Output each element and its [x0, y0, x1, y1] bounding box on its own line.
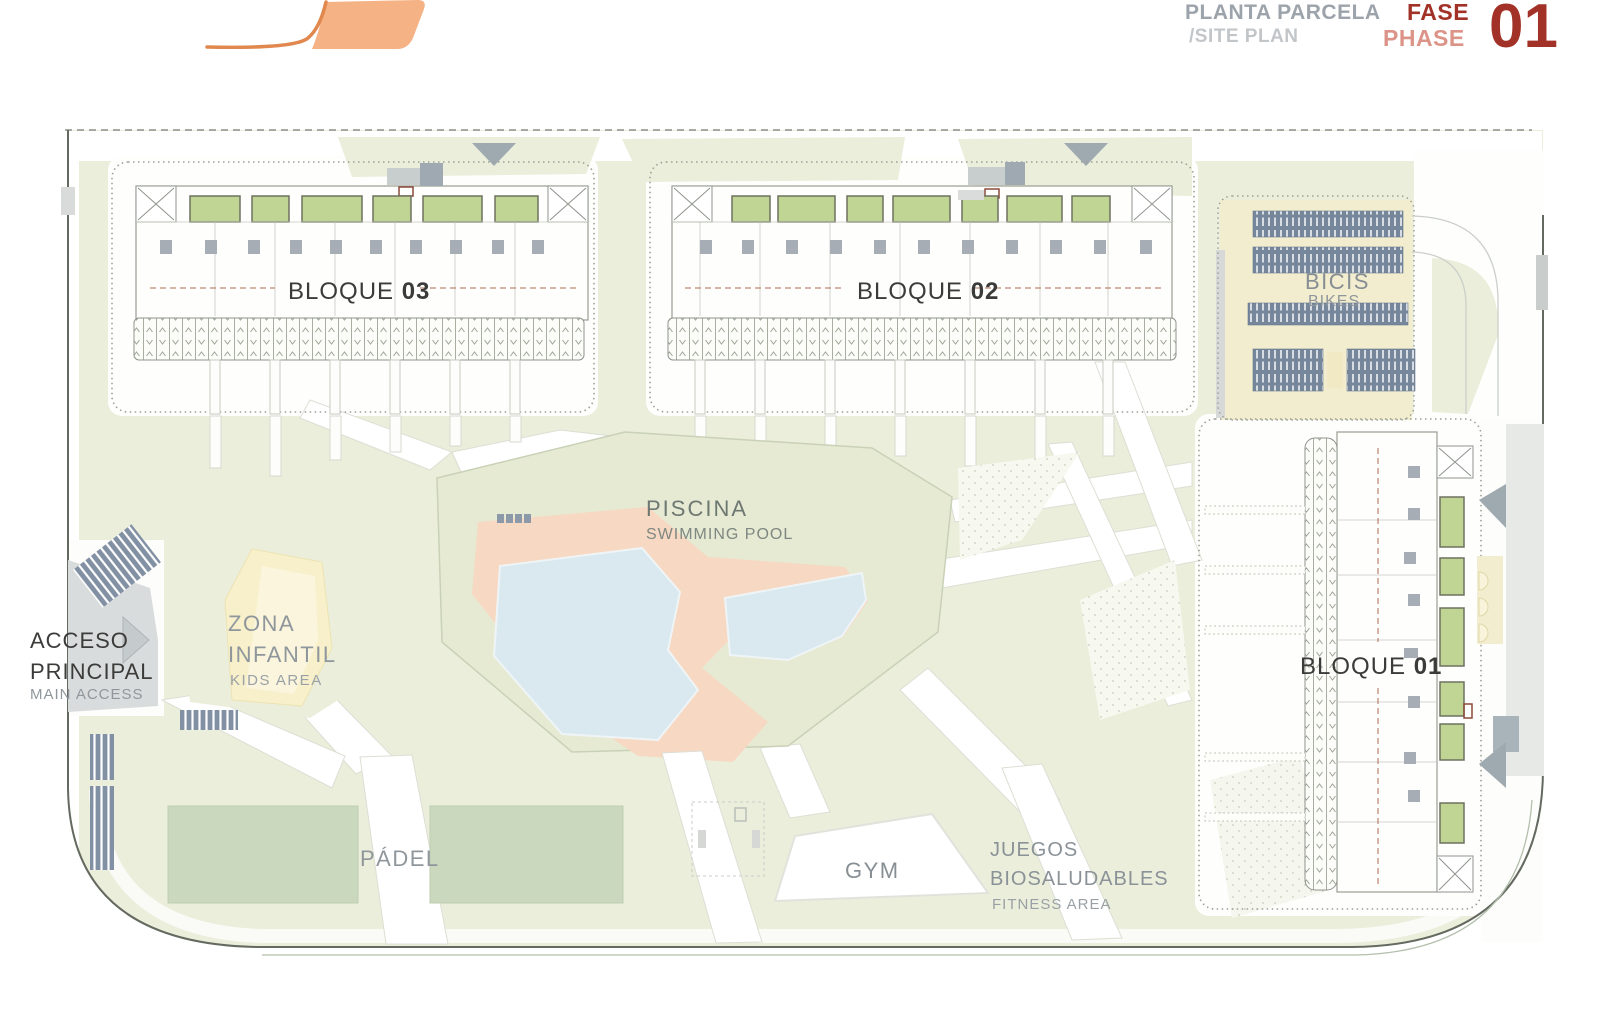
bloque-01-label: BLOQUE 01: [1300, 655, 1442, 679]
padel-court-2: [430, 806, 623, 903]
bloque-02-label: BLOQUE 02: [857, 280, 999, 304]
terraces: [668, 318, 1176, 360]
sheet-subtitle: /SITE PLAN: [1189, 27, 1299, 46]
bloque-03-word: BLOQUE: [288, 278, 394, 305]
main-access-sublabel: MAIN ACCESS: [30, 687, 144, 702]
bloque-02-number: 02: [971, 278, 1000, 305]
bloque-02-word: BLOQUE: [857, 278, 963, 305]
kids-area-label: ZONAINFANTIL: [228, 608, 337, 670]
fitness-label: JUEGOSBIOSALUDABLES: [990, 836, 1169, 894]
kids-line2: INFANTIL: [228, 642, 337, 667]
pool-label: PISCINA: [646, 498, 748, 520]
gym-label: GYM: [845, 860, 900, 882]
padel-court-1: [168, 806, 358, 903]
bloque-01-word: BLOQUE: [1300, 653, 1406, 680]
fitness-line1: JUEGOS: [990, 839, 1078, 861]
terraces: [134, 318, 584, 360]
site-plan-sheet: PLANTA PARCELA /SITE PLAN FASE PHASE 01 …: [0, 0, 1600, 1024]
access-line1: ACCESO: [30, 628, 129, 653]
fitness-sublabel: FITNESS AREA: [992, 897, 1112, 912]
kids-area-sublabel: KIDS AREA: [230, 673, 323, 688]
access-line2: PRINCIPAL: [30, 659, 154, 684]
bloque-03-number: 03: [402, 278, 431, 305]
sheet-title: PLANTA PARCELA: [1185, 2, 1381, 23]
padel-label: PÁDEL: [360, 848, 440, 870]
main-access-label: ACCESOPRINCIPAL: [30, 625, 154, 687]
kids-line1: ZONA: [228, 611, 295, 636]
site-plan-drawing: [0, 0, 1600, 1024]
bloque-01-number: 01: [1414, 653, 1443, 680]
pool-sublabel: SWIMMING POOL: [646, 527, 793, 543]
bloque-03-label: BLOQUE 03: [288, 280, 430, 304]
phase-number: 01: [1489, 0, 1558, 58]
brand-logo: [200, 0, 440, 56]
bikes-label: BICIS: [1305, 271, 1370, 293]
phase-label: PHASE: [1383, 27, 1465, 50]
fase-label: FASE: [1407, 1, 1469, 24]
fitness-line2: BIOSALUDABLES: [990, 868, 1169, 890]
bikes-sublabel: BIKES: [1308, 294, 1360, 310]
private-gardens: [732, 196, 1110, 222]
